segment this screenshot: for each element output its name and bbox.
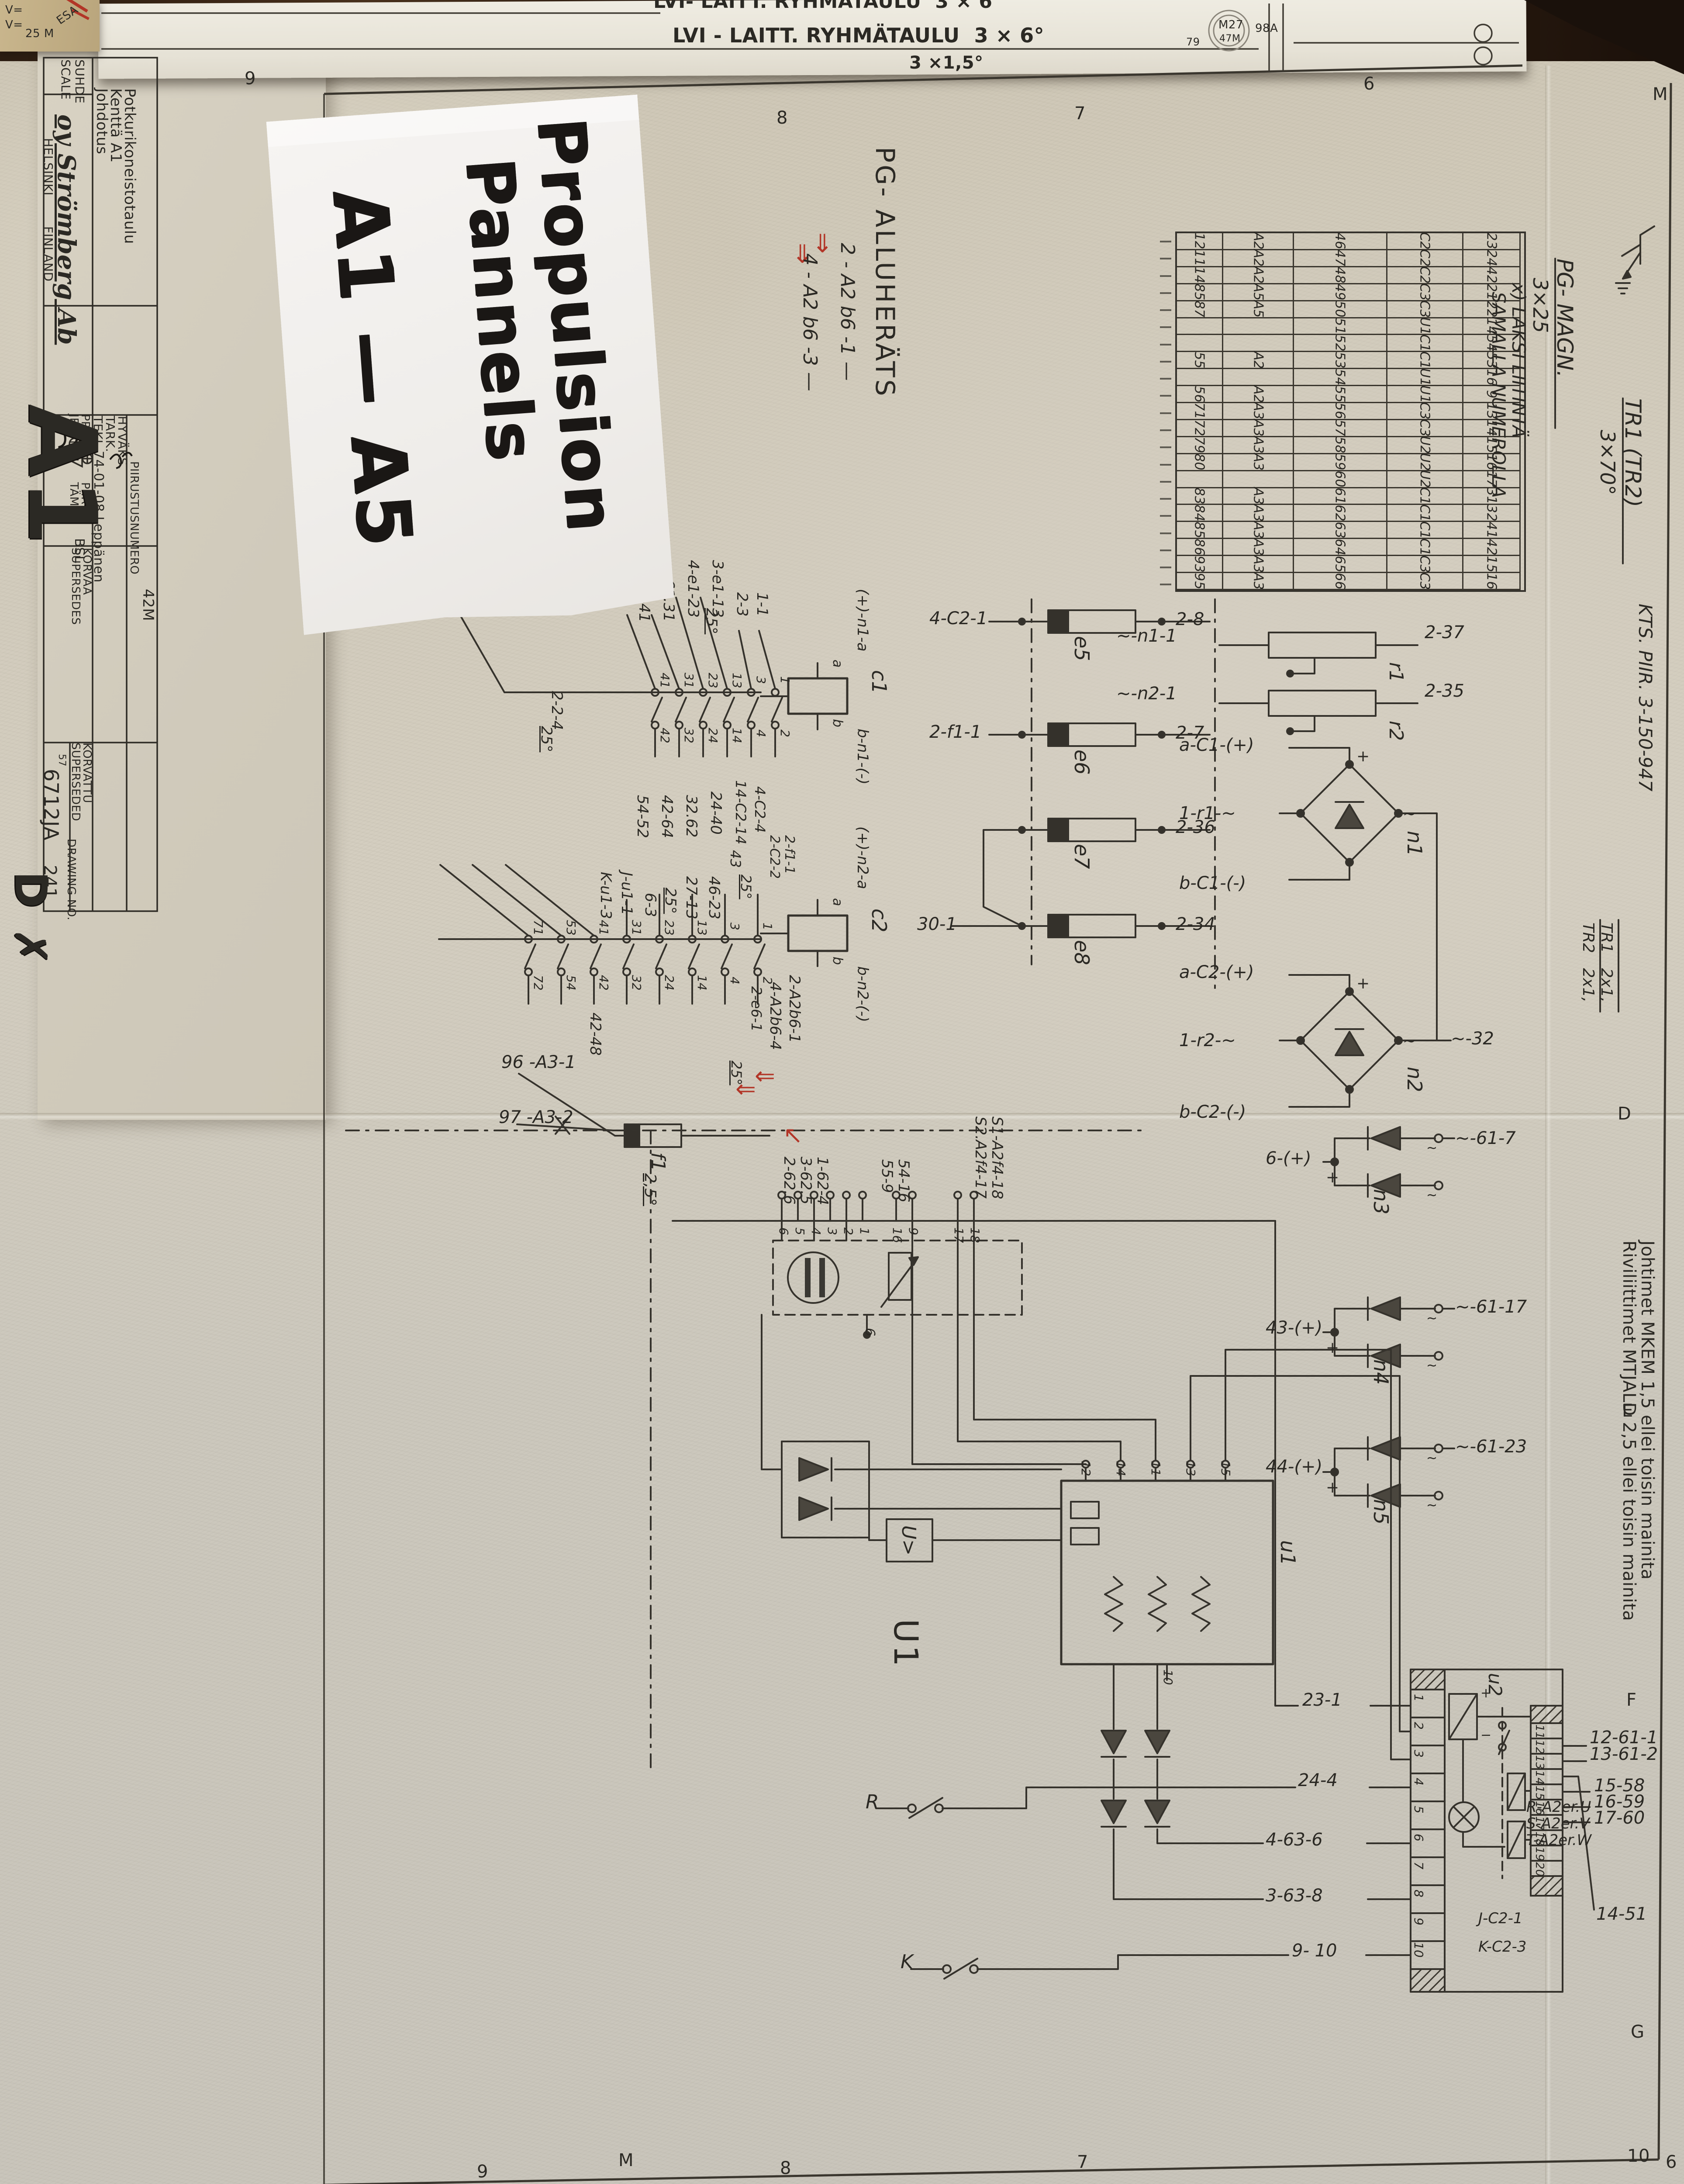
table-row-tick [1160,481,1171,483]
wire-label: S1-A2f4-18 [990,1116,1004,1199]
wire-label: 11 [1149,1461,1162,1476]
wire-label: 25° [739,874,753,899]
strip-label: LVI - LAITT. RYHMÄTAULU 3 × 6° [673,25,1044,45]
wire-label: 4-63-6 [1266,1831,1323,1849]
table-row-tick [1160,532,1171,534]
zone-mark: 10 [1627,2147,1650,2165]
component-label: n5 [1371,1499,1391,1524]
wire-label: 3-63-8 [1266,1887,1323,1904]
component-label: e5 [1072,636,1092,661]
wire-label: J-C2-1 [1478,1911,1523,1926]
wire-label: a-C2-(+) [1179,964,1254,981]
title-block-text: Kenttä A1 [108,88,123,163]
wire-label: 4 - A2 b6 -3 — [800,253,819,391]
wire-label: 13 [1534,1755,1545,1769]
wire-label: 2,5° [642,1173,658,1206]
wire-label: Johtimet MKEM 1,5 ellei toisin mainita [1639,1241,1656,1580]
wire-label: 43 [728,850,742,868]
wire-label: K-C2-3 [1478,1939,1526,1954]
title-block-text: SUHDE [73,59,86,104]
wire-label: 25° [729,1061,743,1085]
wire-label: 2-34 [1176,916,1215,933]
wire-label: 15 [1219,1461,1232,1476]
component-label: r1 [1386,662,1405,682]
wire-label: KTS. PIIR. 3-150-947 [1636,604,1654,791]
wire-label: 13 [696,920,708,936]
wire-label: 16 [891,1227,903,1243]
wire-label: + [1356,976,1370,992]
wire-label: 5 [1412,1806,1425,1814]
wire-label: ~-61-7 [1455,1130,1516,1147]
wire-label: 32 [630,975,642,991]
component-label: e8 [1072,940,1092,965]
wire-label: 42-64 [659,795,674,838]
wire-label: b-C1-(-) [1179,874,1246,892]
wire-label: 6 [777,1227,790,1235]
wire-label: 19 [1534,1847,1545,1861]
wire-label: 97 -A3-2 [499,1109,573,1126]
wire-label: 46-23 [707,876,721,919]
wire-label: 2-f1-1 [929,723,981,741]
wire-label: − [1480,1729,1491,1742]
wire-label: b [831,957,844,965]
title-block-text: PIIRUSTUSNUMERO [128,461,140,574]
wire-label: 4-C2-1 [929,610,987,627]
title-block-text: KORVAA [81,548,93,595]
wire-label: 24 [663,975,675,991]
wire-label: 14 [696,975,708,991]
strip-label: LVI- LAITT. RYHMÄTAULU 3 × 6 [653,0,993,11]
wire-label: 23-1 [1302,1691,1342,1709]
wire-label: 3 [826,1227,838,1235]
wire-label: 17 [952,1227,965,1243]
table-row-tick [1160,567,1171,568]
wire-label: PG- MAGN. [1554,259,1576,377]
wire-label: 55-9 [880,1159,894,1193]
wire-label: 6-3 [643,893,658,917]
wire-label: b-n1-(-) [855,729,870,784]
wire-label: 2-f1-1 [783,835,796,874]
wire-label: x) LAKSI LIITINTÄ [1509,283,1528,438]
wire-label: 12 [1080,1461,1092,1476]
wire-label: ~ [1426,1189,1437,1202]
wire-label: 2-A2b6-1 [787,975,802,1043]
component-label: u2 [1486,1673,1504,1696]
strip-label: 3 ×1,5° [909,54,983,72]
wire-label: 1 [1412,1694,1425,1702]
title-block-text: DRAWING NO. [66,839,77,920]
wire-label: 7 [1412,1862,1425,1870]
wire-label: 11 [1534,1724,1545,1739]
title-block-text: SUPERSEDED [70,743,81,821]
wire-label: b-n2-(-) [855,966,870,1022]
wire-label: 3 [728,923,741,930]
title-block-text: A1 [15,404,109,547]
wire-label: 1-1 [755,592,770,617]
title-block-text: 42M [141,589,155,621]
table-row-tick [1160,498,1171,500]
table-row-tick [1160,344,1171,346]
zone-mark: M [618,2152,634,2169]
wire-label: b [831,719,844,727]
zone-mark: 6 [1363,75,1375,93]
wire-label: 3×70° [1598,430,1618,495]
wire-label: 2-8 [1176,611,1204,628]
zone-mark: M [1653,86,1668,103]
wire-label: 42 [597,975,610,991]
wire-label: K [901,1952,913,1972]
wire-label: 1 [779,676,791,684]
title-block-text: D ✗ [9,871,52,968]
wire-label: 1 [761,923,773,930]
wire-label: 2-35 [1425,682,1464,700]
wire-label: + [1326,1340,1339,1356]
wire-label: 4-e1-23 [686,560,701,618]
wire-label: SAMALLA NUMEROLLA [1489,292,1508,498]
wire-label: 6 [1412,1834,1425,1842]
wire-label: TR1 (TR2) [1622,398,1644,507]
wire-label: 53 [565,920,577,936]
wire-label: 71 [532,920,544,936]
wire-label: ~-32 [1451,1030,1494,1047]
component-label: n2 [1404,1067,1425,1092]
zone-mark: 8 [780,2160,791,2177]
wire-label: U1 [889,1619,922,1669]
wire-label: 12-61-1 [1590,1729,1658,1746]
wire-label: ~-61-17 [1455,1298,1527,1316]
wire-label: TR2 2x1, [1580,923,1596,1002]
wire-label: 24-4 [1298,1772,1338,1789]
wire-label: 17 [1534,1816,1545,1831]
wire-label: 3 [755,676,767,684]
title-block-text: oy Strömberg Ab [54,114,79,345]
wire-label: 5 [794,1227,806,1235]
wire-label: ~ [1426,1142,1437,1155]
wire-label: 24 [707,728,719,743]
table-row-tick [1160,412,1171,414]
wire-label: 17-60 [1594,1809,1645,1827]
wire-label: 18 [1534,1832,1545,1846]
wire-label: S2.A2f4-17 [973,1116,988,1199]
table-row-tick [1160,326,1171,328]
wire-label: 14-51 [1596,1905,1647,1923]
wire-label: + [1326,1480,1339,1496]
wire-label: 54-52 [635,795,650,838]
wire-label: R [866,1793,879,1812]
component-label: f1 [648,1152,667,1171]
wire-label: 32 [683,728,695,743]
wire-label: 44-(+) [1266,1458,1322,1476]
wire-label: 43-(+) [1266,1319,1322,1337]
wire-label: ~ [1403,1033,1416,1049]
wire-label: ⇐ [755,1064,775,1089]
wire-label: 2-62.6 [782,1157,797,1205]
wire-label: 14 [1115,1461,1127,1476]
title-block-text: Johdotus [94,88,109,154]
wire-label: ~-61-23 [1455,1438,1527,1455]
wire-label: 2 [779,729,791,737]
wire-label: 9- 10 [1292,1942,1337,1959]
table-row-tick [1160,309,1171,311]
labels-layer: ~-n1-12-37~-n2-12-35a-C1-(+)1-r1-~b-C1-(… [0,0,1684,2184]
wire-label: 27-13 [684,876,699,919]
wire-label: ↖ [783,1123,803,1147]
wire-label: 31 [683,673,695,688]
wire-label: a [831,660,844,667]
wire-label: 2-e6-1 [749,986,763,1032]
wire-label: PG- ALLUHERÄTS [872,147,898,398]
table-row-tick [1160,464,1171,466]
zone-mark: 7 [1074,105,1086,122]
wire-label: 96 -A3-1 [501,1054,576,1071]
wire-label: 2-2-4 [549,691,564,730]
wire-label: Riviliittimet MTJALD 2,5 ellei toisin ma… [1620,1241,1638,1621]
wire-label: 2-C2-2 [768,835,781,879]
wire-label: 25° [663,888,678,914]
wire-label: ~ [1426,1499,1437,1512]
wire-label: 2-7 [1176,724,1204,742]
wire-label: 20 [1534,1862,1545,1876]
wire-label: 32.62 [684,795,699,837]
wire-label: 4-A2b6-4 [768,982,783,1050]
title-block-text: KORVATTU [81,743,93,803]
wire-label: + [1356,749,1370,764]
wire-label: 54 [565,975,577,991]
wire-label: + [1326,1170,1339,1185]
wire-label: 16 [1534,1801,1545,1815]
zone-mark: 9 [245,70,256,87]
table-row-tick [1160,395,1171,397]
wire-label: a [831,898,844,906]
wire-label: ~-n1-1 [1116,627,1177,645]
handwritten-label-sticker: Propulsion Pannels A1 — A5 [266,94,676,640]
table-row-tick [1160,275,1171,277]
wire-label: ~ [1426,1452,1437,1465]
wire-label: 13-61-2 [1590,1745,1658,1763]
wire-label: ~-n2-1 [1116,685,1177,702]
wire-label: 18 [969,1227,981,1243]
strip-label: 79 [1186,37,1200,47]
wire-label: 14 [1534,1770,1545,1785]
wire-label: 23 [663,920,675,936]
table-row-tick [1160,292,1171,294]
strip-label: ESA [55,4,80,27]
wire-label: ~ [1426,1359,1437,1372]
title-block-text: 6712JA [41,769,61,840]
wire-label: 8 [1412,1890,1425,1897]
component-label: c2 [869,909,889,933]
wire-label: 4 [728,977,741,985]
wire-label: 4-C2-4 [753,786,767,833]
wire-label: 6 [863,1328,876,1336]
wire-label: 10 [1412,1942,1425,1958]
wire-label: 9 [907,1227,919,1235]
wire-label: 9 [1412,1918,1425,1925]
component-label: n3 [1371,1189,1391,1214]
photo-of-schematic: 12A246C22311A247C22414A248C24285A549C321… [0,0,1684,2184]
wire-label: ~ [1426,1312,1437,1325]
table-row-tick [1160,549,1171,551]
table-row-tick [1160,241,1171,242]
wire-label: 3 [1412,1750,1425,1758]
zone-mark: F [1626,1691,1637,1709]
zone-mark: 6 [1666,2153,1677,2171]
wire-label: 23 [707,673,719,688]
component-label: u1 [1278,1540,1298,1565]
strip-label: V= [5,19,23,31]
strip-label: M27 [1218,19,1243,31]
wire-label: TR1 2x1, [1598,923,1614,1002]
wire-label: 4 [810,1227,822,1235]
strip-label: V= [5,4,23,16]
wire-label: 1-62-4 [815,1157,830,1205]
wire-label: 2-36 [1176,819,1215,836]
wire-label: 25° [704,608,719,634]
wire-label: 24-40 [708,791,723,835]
wire-label: b-C2-(-) [1179,1103,1246,1121]
wire-label: 31 [630,920,642,936]
wire-label: 14-C2-14 [734,780,748,844]
wire-label: 42 [659,728,671,743]
strip-label: 98A [1255,23,1278,34]
zone-mark: D [1618,1105,1631,1123]
zone-mark: 8 [776,109,788,127]
wire-label: 41 [597,920,610,936]
component-label: e7 [1072,844,1092,869]
wire-label: (+)-n1-a [855,589,870,652]
wire-label: K-u1-3 [598,872,613,919]
zone-mark: 9 [477,2163,488,2181]
wire-label: 30-1 [917,916,957,933]
table-row-tick [1160,515,1171,517]
wire-label: ~ [1403,806,1416,822]
component-label: c1 [869,670,889,694]
title-block-text: Potkurikoneistotaulu [122,88,137,244]
wire-label: 41 [659,673,671,688]
strip-label: 25 M [25,28,54,39]
zone-mark: 7 [1077,2153,1088,2171]
wire-label: 42-48 [588,1013,603,1056]
table-row-tick [1160,258,1171,259]
component-label: n4 [1371,1359,1391,1385]
wire-label: 54-16 [896,1159,911,1203]
wire-label: 13 [1184,1461,1197,1476]
table-row-tick [1160,361,1171,363]
wire-label: 2 - A2 b6 -1 — [838,243,857,381]
table-row-tick [1160,378,1171,380]
wire-label: 1-r2-~ [1179,1032,1236,1049]
wire-label: 15 [1534,1786,1545,1800]
component-label: e6 [1072,750,1092,775]
title-block-text: 57 [57,754,66,767]
wire-label: 2 [842,1227,854,1235]
zone-mark: G [1631,2023,1645,2041]
wire-label: 10 [1162,1669,1174,1685]
title-block-text: SCALE [59,59,72,100]
title-block-text: SUPERSEDES [70,548,81,625]
wire-label: 2 [1412,1722,1425,1730]
wire-label: 2-3 [735,592,749,617]
title-block-text: HYVÄKS. [116,416,128,470]
wire-label: 72 [532,975,544,991]
wire-label: 1 [858,1227,870,1235]
wire-label: 2-37 [1425,624,1464,641]
table-row-tick [1160,446,1171,448]
zone-mark: E [1622,1402,1633,1420]
sticker-line3: A1 — A5 [316,186,429,551]
wire-label: 14 [731,728,743,743]
wire-label: 12 [1534,1740,1545,1754]
wire-label: 3×25 [1530,278,1550,333]
wire-label: 4 [1412,1778,1425,1786]
wire-label: 13 [731,673,743,688]
wire-label: 3-62.5 [798,1157,813,1205]
wire-label: 4 [755,729,767,737]
component-label: r2 [1386,721,1405,741]
component-label: n1 [1404,831,1425,856]
strip-label: 47M [1219,34,1240,44]
table-row-tick [1160,584,1171,585]
wire-label: J-u1-1 [619,872,634,915]
wire-label: (+)-n2-a [855,826,870,889]
table-row-tick [1160,429,1171,431]
wire-label: 6-(+) [1266,1150,1311,1167]
wire-label: U> [899,1525,918,1555]
